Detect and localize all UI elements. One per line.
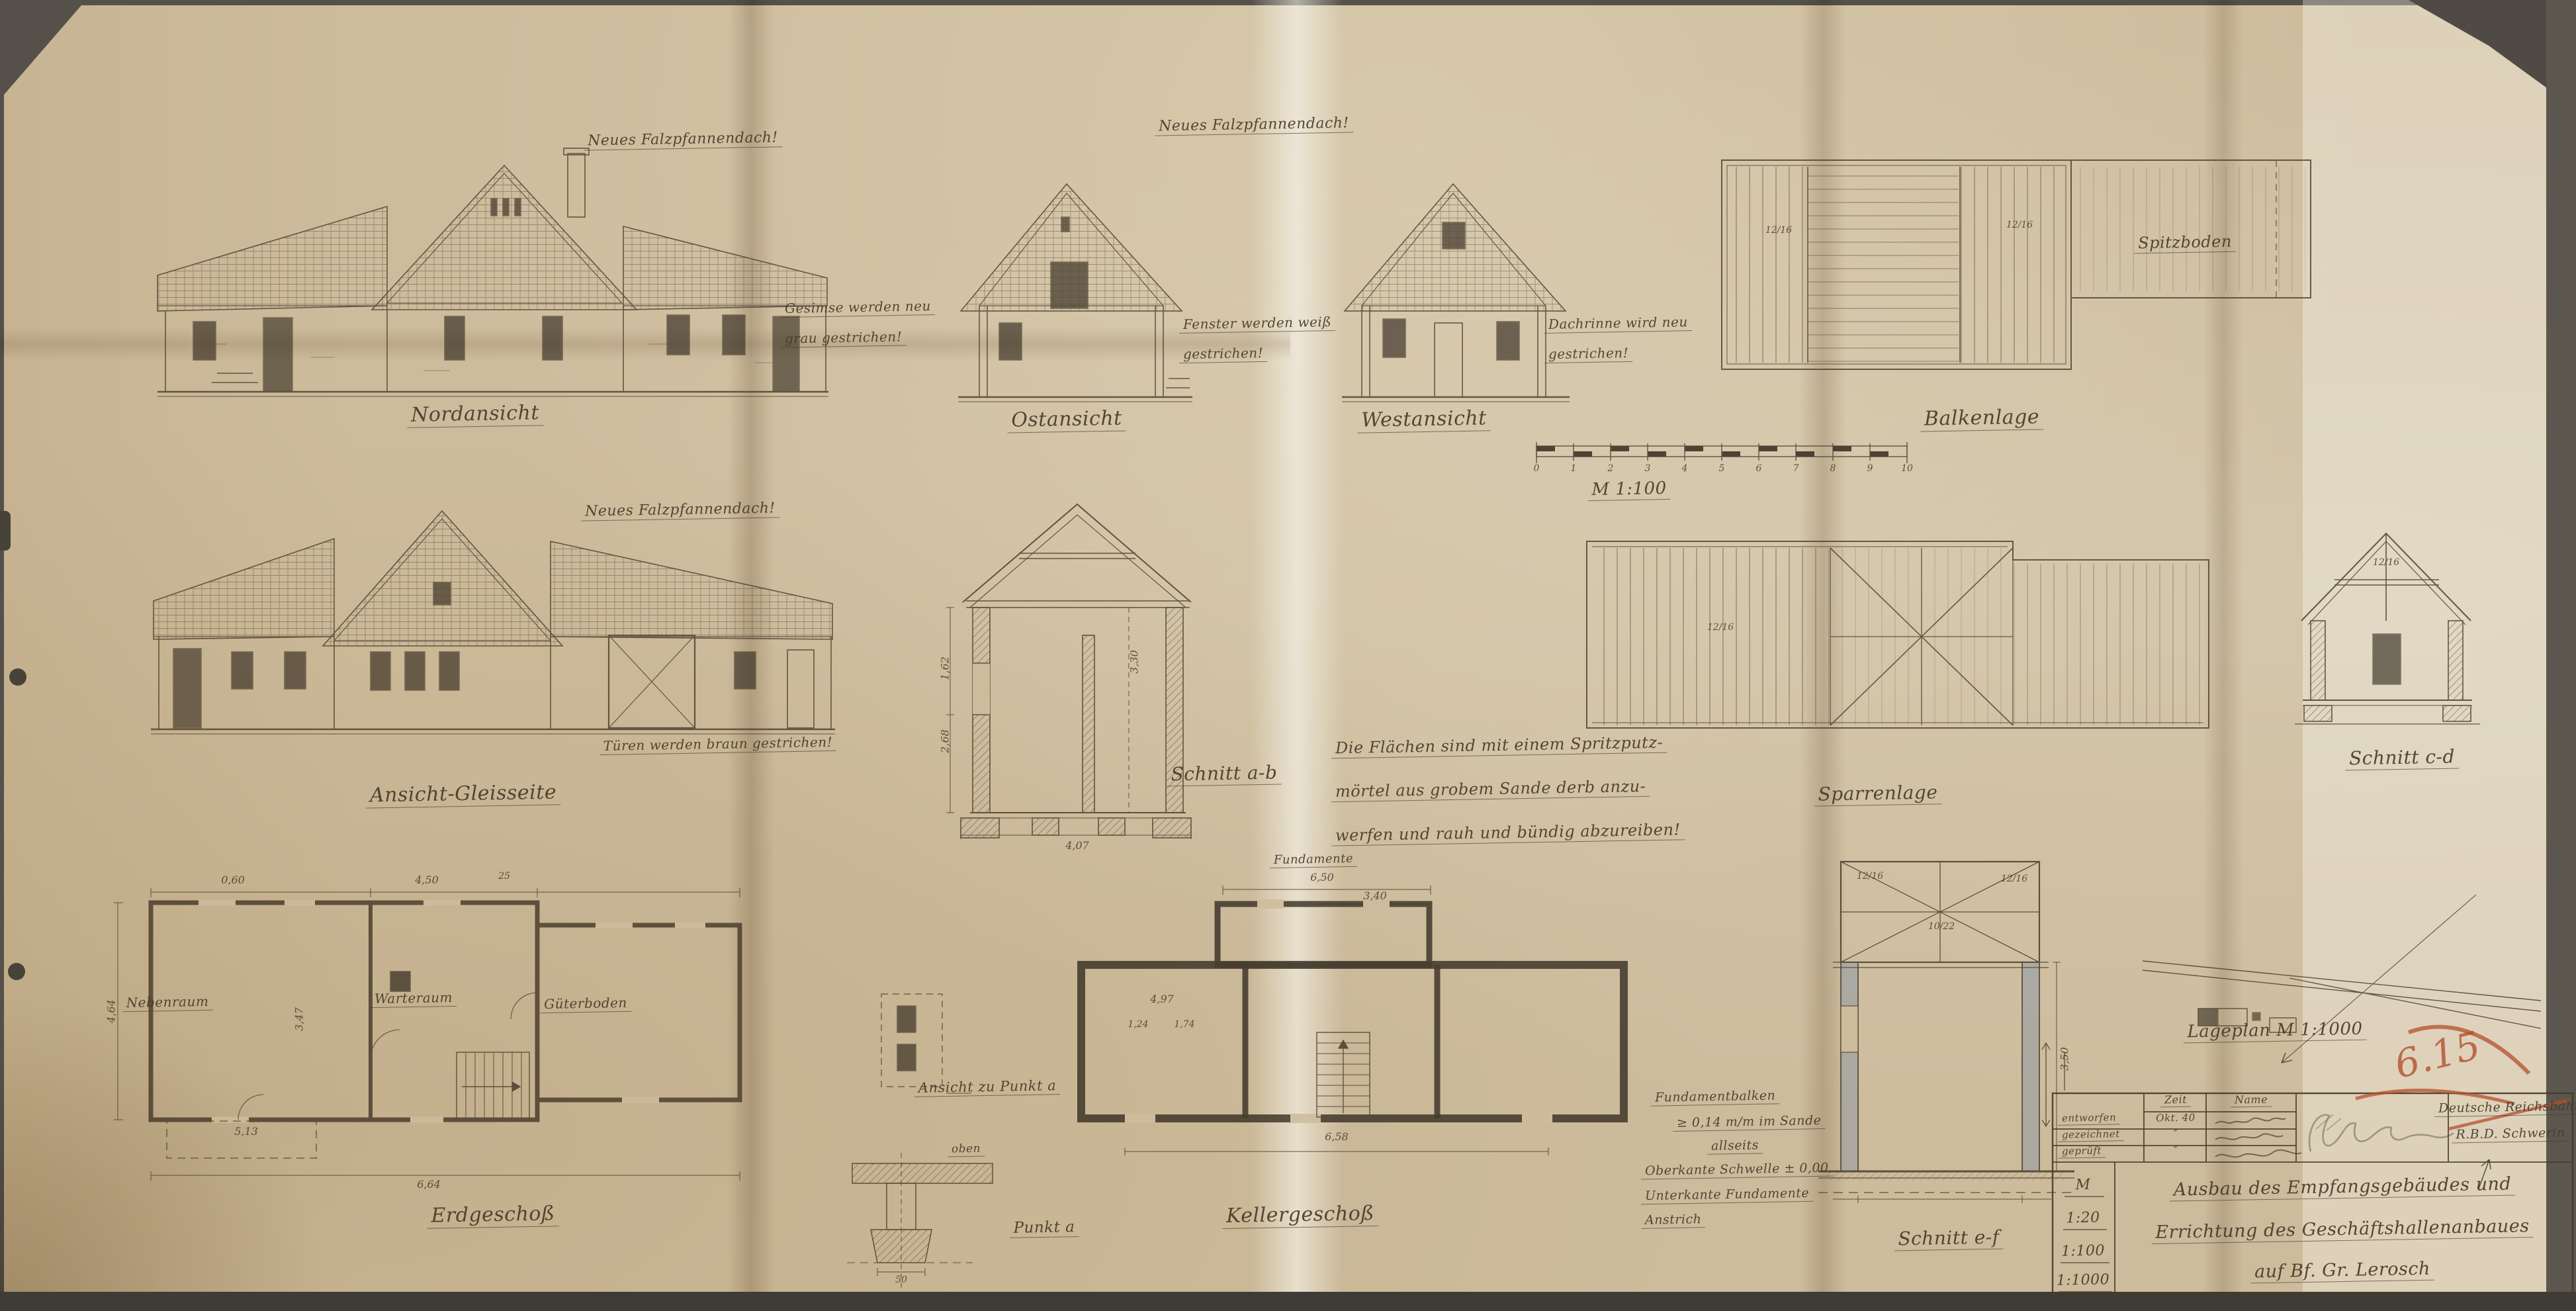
label-spitzboden: Spitzboden xyxy=(2134,232,2236,254)
beam-size: 12/16 xyxy=(1857,871,1883,882)
scale-tick: 10 xyxy=(1901,463,1913,474)
dim: 6,50 xyxy=(1310,871,1334,883)
dim: 4,50 xyxy=(415,874,439,886)
foundation-note-5: Unterkante Fundamente xyxy=(1641,1186,1814,1205)
label-kellergeschoss: Kellergeschoß xyxy=(1222,1202,1378,1229)
tb-title-line3: auf Bf. Gr. Lerosch xyxy=(2250,1259,2434,1284)
beam-size: 12/16 xyxy=(1765,225,1792,236)
scale-tick: 0 xyxy=(1534,463,1540,474)
tb-scale-1000: 1:1000 xyxy=(2053,1271,2114,1290)
dim: 3,30 xyxy=(1128,650,1141,674)
note-west-1: Dachrinne wird neu xyxy=(1544,314,1692,334)
label-nordansicht: Nordansicht xyxy=(407,401,543,428)
tb-row1-zeit: Okt. 40 xyxy=(2152,1111,2199,1124)
roof-note-1: Neues Falzpfannendach! xyxy=(584,129,782,150)
tb-row3-label: geprüft xyxy=(2058,1144,2106,1158)
dim: 4,07 xyxy=(1065,839,1089,852)
scale-tick: 9 xyxy=(1867,463,1873,474)
dim: 5,13 xyxy=(234,1125,258,1138)
beam-size: 10/22 xyxy=(1928,921,1955,932)
dim: 1,62 xyxy=(939,656,952,680)
dim: 3,40 xyxy=(1363,889,1387,902)
label-erdgeschoss: Erdgeschoß xyxy=(427,1202,559,1228)
scale-tick: 2 xyxy=(1608,463,1614,474)
note-west-2: gestrichen! xyxy=(1544,345,1633,363)
scale-tick: 6 xyxy=(1756,463,1762,474)
dim: 25 xyxy=(498,871,510,882)
dim: 4,97 xyxy=(1150,993,1174,1005)
dim: 6,64 xyxy=(417,1178,441,1191)
scale-tick: 7 xyxy=(1793,463,1799,474)
scale-tick: 4 xyxy=(1682,463,1688,474)
ostansicht-drawing xyxy=(958,184,1192,402)
schnitt-ab-drawing xyxy=(946,504,1191,839)
room-gueterboden: Güterboden xyxy=(540,995,631,1013)
dim: 2,68 xyxy=(939,729,952,753)
beam-size: 12/16 xyxy=(1707,622,1734,633)
note-north-1: Gesimse werden neu xyxy=(781,298,935,318)
tb-row1-label: entworfen xyxy=(2058,1111,2121,1126)
tb-stamp-line2: R.B.D. Schwerin xyxy=(2452,1125,2569,1143)
label-fundamente: Fundamente xyxy=(1270,852,1358,868)
kellergeschoss-drawing xyxy=(1081,885,1624,1155)
scale-tick: 8 xyxy=(1830,463,1836,474)
tb-scale-20: 1:20 xyxy=(2062,1209,2104,1227)
label-schnitt-cd: Schnitt c-d xyxy=(2345,746,2459,771)
tb-header-name: Name xyxy=(2231,1093,2272,1107)
note-east-2: gestrichen! xyxy=(1179,345,1268,363)
tb-scale-100: 1:100 xyxy=(2057,1242,2109,1260)
westansicht-drawing xyxy=(1342,184,1570,402)
note-north-2: grau gestrichen! xyxy=(781,328,907,347)
foundation-note-3: allseits xyxy=(1707,1138,1763,1154)
label-westansicht: Westansicht xyxy=(1357,406,1491,433)
beam-size: 12/16 xyxy=(2006,220,2033,230)
label-lageplan: Lageplan M 1:1000 xyxy=(2183,1019,2367,1044)
balkenlage-drawing xyxy=(1722,160,2311,369)
schnitt-ef-drawing xyxy=(1818,862,2074,1203)
roof-note-3: Neues Falzpfannendach! xyxy=(581,500,779,521)
scanned-drawing-sheet: Neues Falzpfannendach! Neues Falzpfannen… xyxy=(0,0,2576,1311)
dim: 50 xyxy=(895,1275,907,1285)
note-east-1: Fenster werden weiß xyxy=(1179,314,1336,334)
foundation-note-6: Anstrich xyxy=(1641,1212,1706,1229)
label-oben: oben xyxy=(948,1142,985,1157)
dim: 3,47 xyxy=(293,1007,306,1031)
label-schnitt-ef: Schnitt e-f xyxy=(1894,1226,2004,1251)
sparrenlage-drawing xyxy=(1587,541,2209,728)
tb-stamp-line1: Deutsche Reichsbahn xyxy=(2434,1099,2576,1117)
label-schnitt-ab: Schnitt a-b xyxy=(1167,761,1281,786)
label-scale-m100: M 1:100 xyxy=(1587,478,1671,501)
title-block-frame xyxy=(2042,1043,2573,1294)
dim: 4,64 xyxy=(105,999,118,1023)
scale-bar xyxy=(1536,442,1907,463)
roof-note-2: Neues Falzpfannendach! xyxy=(1155,114,1353,136)
label-balkenlage: Balkenlage xyxy=(1920,405,2044,431)
foundation-note-2: ≥ 0,14 m/m im Sande xyxy=(1673,1113,1826,1132)
dim: 1,74 xyxy=(1174,1019,1194,1030)
label-gleisseite: Ansicht-Gleisseite xyxy=(366,780,561,808)
foundation-note-1: Fundamentbalken xyxy=(1651,1088,1780,1106)
nordansicht-drawing xyxy=(157,148,828,396)
scale-tick: 5 xyxy=(1719,463,1725,474)
room-warteraum: Warteraum xyxy=(371,989,457,1008)
label-punkt-a: Punkt a xyxy=(1009,1218,1079,1238)
tb-scale-m: M xyxy=(2071,1177,2094,1195)
dim: 0,60 xyxy=(221,874,245,886)
beam-size: 12/16 xyxy=(2001,874,2027,884)
tb-row3-zeit: ″ xyxy=(2170,1144,2182,1157)
room-nebenraum: Nebenraum xyxy=(122,993,212,1012)
dim: 6,58 xyxy=(1325,1130,1349,1143)
foundation-note-4: Oberkante Schwelle ± 0,00 xyxy=(1641,1160,1833,1179)
erdgeschoss-drawing xyxy=(114,888,740,1181)
label-ostansicht: Ostansicht xyxy=(1007,406,1126,433)
beam-size: 12/16 xyxy=(2373,557,2399,568)
signatures xyxy=(2215,1114,2454,1157)
scale-tick: 1 xyxy=(1571,463,1577,474)
label-sparrenlage: Sparrenlage xyxy=(1814,781,1941,806)
tb-header-zeit: Zeit xyxy=(2160,1093,2192,1108)
label-ansicht-punkt-a: Ansicht zu Punkt a xyxy=(914,1077,1061,1097)
gleisseite-drawing xyxy=(151,511,835,734)
scale-tick: 3 xyxy=(1645,463,1651,474)
tb-row2-label: gezeichnet xyxy=(2058,1128,2124,1142)
dim: 3,50 xyxy=(2059,1047,2071,1071)
dim: 1,24 xyxy=(1128,1019,1148,1030)
tb-row2-zeit: ″ xyxy=(2170,1128,2182,1140)
